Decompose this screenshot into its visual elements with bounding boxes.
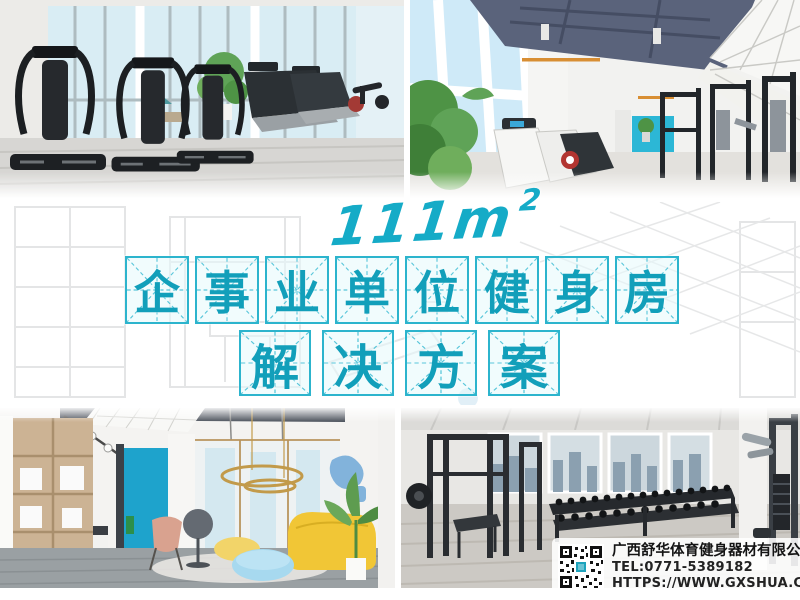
photo-fade	[0, 408, 395, 422]
company-name: 广西舒华体育健身器材有限公司	[612, 542, 800, 560]
cardio-room-illustration	[0, 0, 404, 198]
title-char: 方	[407, 332, 475, 394]
char-box: 案	[488, 330, 560, 396]
title-line1: 企 事 业 单 位 健 身 房	[125, 256, 679, 324]
title-char: 解	[241, 332, 309, 394]
photo-fade	[401, 408, 800, 422]
photo-cardio-room	[0, 0, 404, 198]
char-box: 方	[405, 330, 477, 396]
qr-code	[558, 544, 604, 590]
char-box: 解	[239, 330, 311, 396]
char-box: 位	[405, 256, 469, 324]
headline-area-exponent: 2	[517, 182, 545, 218]
phone-number: TEL:0771-5389182	[612, 560, 800, 576]
title-char: 身	[547, 258, 607, 322]
char-box: 企	[125, 256, 189, 324]
contact-card: 广西舒华体育健身器材有限公司 TEL:0771-5389182 HTTPS://…	[552, 538, 800, 596]
title-char: 单	[337, 258, 397, 322]
char-box: 身	[545, 256, 609, 324]
char-box: 决	[322, 330, 394, 396]
title-char: 健	[477, 258, 537, 322]
lounge-illustration	[0, 408, 395, 588]
photo-strength-gym	[410, 0, 800, 198]
char-box: 单	[335, 256, 399, 324]
char-box: 业	[265, 256, 329, 324]
photo-lounge-area	[0, 408, 395, 588]
char-box: 事	[195, 256, 259, 324]
website-url: HTTPS://WWW.GXSHUA.COM	[612, 576, 800, 592]
headline-area-value: 111m	[327, 186, 517, 258]
title-char: 业	[267, 258, 327, 322]
title-char: 决	[324, 332, 392, 394]
title-char: 案	[490, 332, 558, 394]
title-char: 企	[127, 258, 187, 322]
title-line2: 解 决 方 案	[239, 330, 560, 396]
contact-text-block: 广西舒华体育健身器材有限公司 TEL:0771-5389182 HTTPS://…	[612, 542, 800, 592]
title-char: 事	[197, 258, 257, 322]
title-char: 房	[617, 258, 677, 322]
char-box: 房	[615, 256, 679, 324]
title-char: 位	[407, 258, 467, 322]
strength-gym-illustration	[410, 0, 800, 198]
poster-canvas: 111m2 企 事 业 单 位 健 身 房 解 决 方 案	[0, 0, 800, 600]
headline-area: 111m2	[327, 185, 541, 259]
char-box: 健	[475, 256, 539, 324]
